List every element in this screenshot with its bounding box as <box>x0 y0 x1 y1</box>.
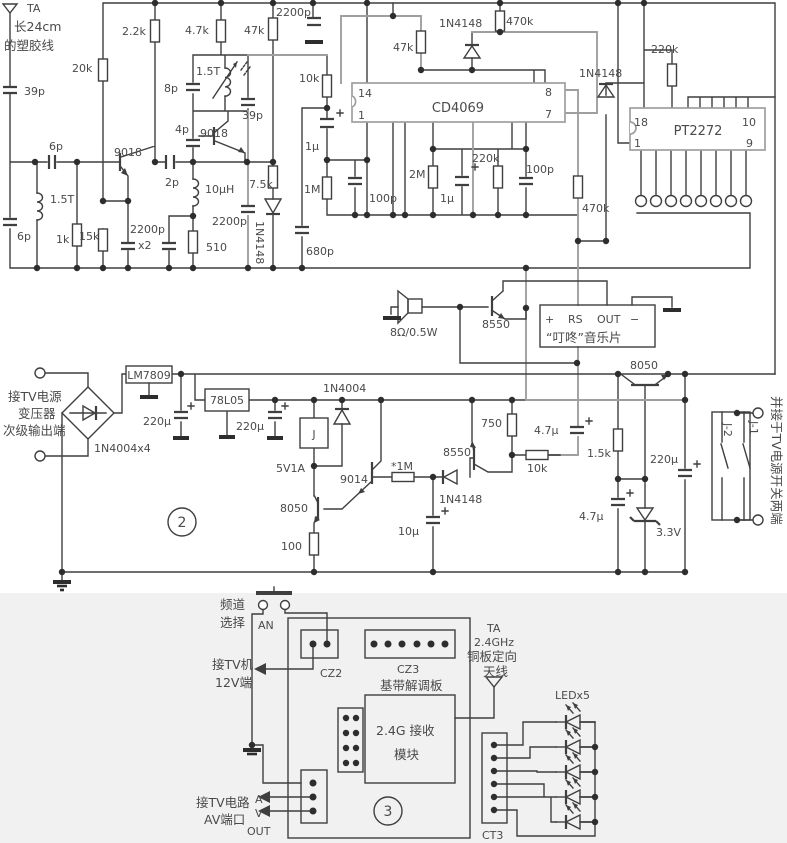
av-v-label: V <box>255 807 263 820</box>
d4148-a-label: 1N4148 <box>253 221 266 264</box>
music-out-label: OUT <box>597 313 621 326</box>
c2200p-a-label: 2200p <box>130 223 165 236</box>
music-plus-label: + <box>545 313 554 326</box>
r47k-b-label: 47k <box>393 41 414 54</box>
ic-pt2272-label: PT2272 <box>674 124 723 139</box>
q1-label: 9018 <box>114 146 142 159</box>
pin9-label: 9 <box>746 137 753 150</box>
av-a-label: A <box>255 793 263 806</box>
c220u-a-label: 220μ <box>143 415 171 428</box>
ch-note1-label: 频道 <box>220 597 246 612</box>
r220k-b-label: 220k <box>651 43 679 56</box>
relay-rating-label: 5V1A <box>276 462 306 475</box>
note-right-label: 并接于TV电源开关两端 <box>769 396 784 525</box>
c39p-b-label: 39p <box>242 109 263 122</box>
c2p-label: 2p <box>165 176 179 189</box>
tv12-1-label: 接TV机 <box>212 657 254 672</box>
q3-label: 8550 <box>482 318 510 331</box>
pin1b-label: 1 <box>634 137 641 150</box>
ct3-label: CT3 <box>482 829 503 842</box>
marker-3-label: 3 <box>384 804 393 820</box>
c4p-label: 4p <box>175 123 189 136</box>
ant2-4-label: 天线 <box>483 664 509 679</box>
c8p-label: 8p <box>164 82 178 95</box>
section-rf-decoder <box>3 0 775 455</box>
ground-icon <box>53 582 71 590</box>
r470k-b-label: 470k <box>582 202 610 215</box>
cz2-label: CZ2 <box>320 667 342 680</box>
q6-label: 8550 <box>443 446 471 459</box>
r100-label: 100 <box>281 540 302 553</box>
module-1-label: 2.4G 接收 <box>376 723 435 738</box>
r47k-a-label: 47k <box>244 24 265 37</box>
q5-label: 9014 <box>340 473 368 486</box>
c2200p-x2-label: x2 <box>138 239 152 252</box>
r1k-label: 1k <box>56 233 70 246</box>
l10uh-label: 10μH <box>205 183 234 196</box>
pin1-label: 1 <box>358 109 365 122</box>
av-out-label: OUT <box>247 825 271 838</box>
c2200p-top-label: 2200p <box>276 6 311 19</box>
music-minus-label: − <box>630 313 639 326</box>
r750-label: 750 <box>481 417 502 430</box>
c1u-b-label: 1μ <box>440 192 454 205</box>
speaker-rating-label: 8Ω/0.5W <box>390 326 438 339</box>
r15k-label: 15k <box>79 230 100 243</box>
j1-label: J-1 <box>747 420 760 435</box>
ant1-note1-label: 长24cm <box>14 19 61 34</box>
ant2-2-label: 2.4GHz <box>474 636 514 649</box>
relay-j-label: J <box>311 428 315 441</box>
speaker-icon <box>398 291 422 323</box>
btn-an-label: AN <box>258 619 274 632</box>
marker-2-label: 2 <box>178 515 187 531</box>
ant2-3-label: 铜板定向 <box>467 649 517 664</box>
r2k2-label: 2.2k <box>122 25 146 38</box>
pin7-label: 7 <box>545 108 552 121</box>
r10k-a-label: 10k <box>299 72 320 85</box>
c4u7-b-label: 4.7μ <box>579 510 604 523</box>
bridge-label: 1N4004x4 <box>94 442 151 455</box>
junction-dots <box>32 0 647 271</box>
pin18-label: 18 <box>634 116 648 129</box>
r220k-a-label: 220k <box>472 152 500 165</box>
resistor <box>73 11 677 253</box>
r7k5-label: 7.5k <box>249 178 273 191</box>
d4148-b-label: 1N4148 <box>439 17 482 30</box>
section-power <box>35 366 775 590</box>
ch-note2-label: 选择 <box>220 615 246 630</box>
c10u-label: 10μ <box>398 525 419 538</box>
r10k-b-label: 10k <box>527 462 548 475</box>
r20k-label: 20k <box>72 62 93 75</box>
in-note2-label: 变压器 <box>18 406 56 421</box>
q2-label: 9018 <box>200 127 228 140</box>
ic-cd4069-label: CD4069 <box>432 101 484 116</box>
r1k5-label: 1.5k <box>587 447 611 460</box>
board-name-label: 基带解调板 <box>380 678 443 693</box>
av-2-label: AV端口 <box>204 812 245 827</box>
av-1-label: 接TV电路 <box>196 795 250 810</box>
j2-label: J-2 <box>721 422 734 437</box>
cz3-label: CZ3 <box>397 663 419 676</box>
d4148-d-label: 1N4148 <box>439 493 482 506</box>
c6p-a-label: 6p <box>49 140 63 153</box>
schematic-page: TA长24cm的塑胶线39p6p1.5T6p1k15k20k90182.2k22… <box>0 0 787 843</box>
d4148-c-label: 1N4148 <box>579 67 622 80</box>
input-terminal <box>35 451 45 461</box>
pin10-label: 10 <box>742 116 756 129</box>
c6p-b-label: 6p <box>17 230 31 243</box>
r2m-label: 2M <box>409 168 426 181</box>
r510-label: 510 <box>206 241 227 254</box>
reg-lm7809-label: LM7809 <box>127 369 171 382</box>
c1u-a-label: 1μ <box>305 140 319 153</box>
r4k7-label: 4.7k <box>185 24 209 37</box>
tv12-2-label: 12V端 <box>215 675 252 690</box>
circuit-schematic: TA长24cm的塑胶线39p6p1.5T6p1k15k20k90182.2k22… <box>0 0 787 843</box>
r1m-label: 1M <box>304 183 321 196</box>
r1m-star-label: *1M <box>391 460 413 473</box>
music-name-label: “叮咚”音乐片 <box>546 330 621 345</box>
r470k-a-label: 470k <box>506 15 534 28</box>
c4u7-a-label: 4.7μ <box>534 424 559 437</box>
in-note3-label: 次级输出端 <box>3 423 66 438</box>
pin14-label: 14 <box>358 87 372 100</box>
c100p-a-label: 100p <box>369 192 397 205</box>
c680p-label: 680p <box>306 245 334 258</box>
c220u-b-label: 220μ <box>236 420 264 433</box>
led-x5-label: LEDx5 <box>555 689 590 702</box>
input-terminal <box>35 368 45 378</box>
c220u-c-label: 220μ <box>650 453 678 466</box>
ant1-note2-label: 的塑胶线 <box>4 38 55 53</box>
ant1-name-label: TA <box>26 2 41 15</box>
bridge-rectifier <box>62 387 114 439</box>
l1-5t-a-label: 1.5T <box>50 193 74 206</box>
q7-label: 8050 <box>280 502 308 515</box>
c39p-a-label: 39p <box>24 85 45 98</box>
d4004-label: 1N4004 <box>323 382 366 395</box>
pin8-label: 8 <box>545 86 552 99</box>
c100p-b-label: 100p <box>526 163 554 176</box>
q8-label: 8050 <box>630 359 658 372</box>
ant2-1-label: TA <box>486 622 501 635</box>
l1-5t-b-label: 1.5T <box>196 65 220 78</box>
zener-label: 3.3V <box>656 526 681 539</box>
in-note1-label: 接TV电源 <box>8 389 62 404</box>
music-rs-label: RS <box>568 313 583 326</box>
reg-78l05-label: 78L05 <box>210 394 244 407</box>
module-2-label: 模块 <box>394 747 420 762</box>
c2200p-b-label: 2200p <box>212 215 247 228</box>
